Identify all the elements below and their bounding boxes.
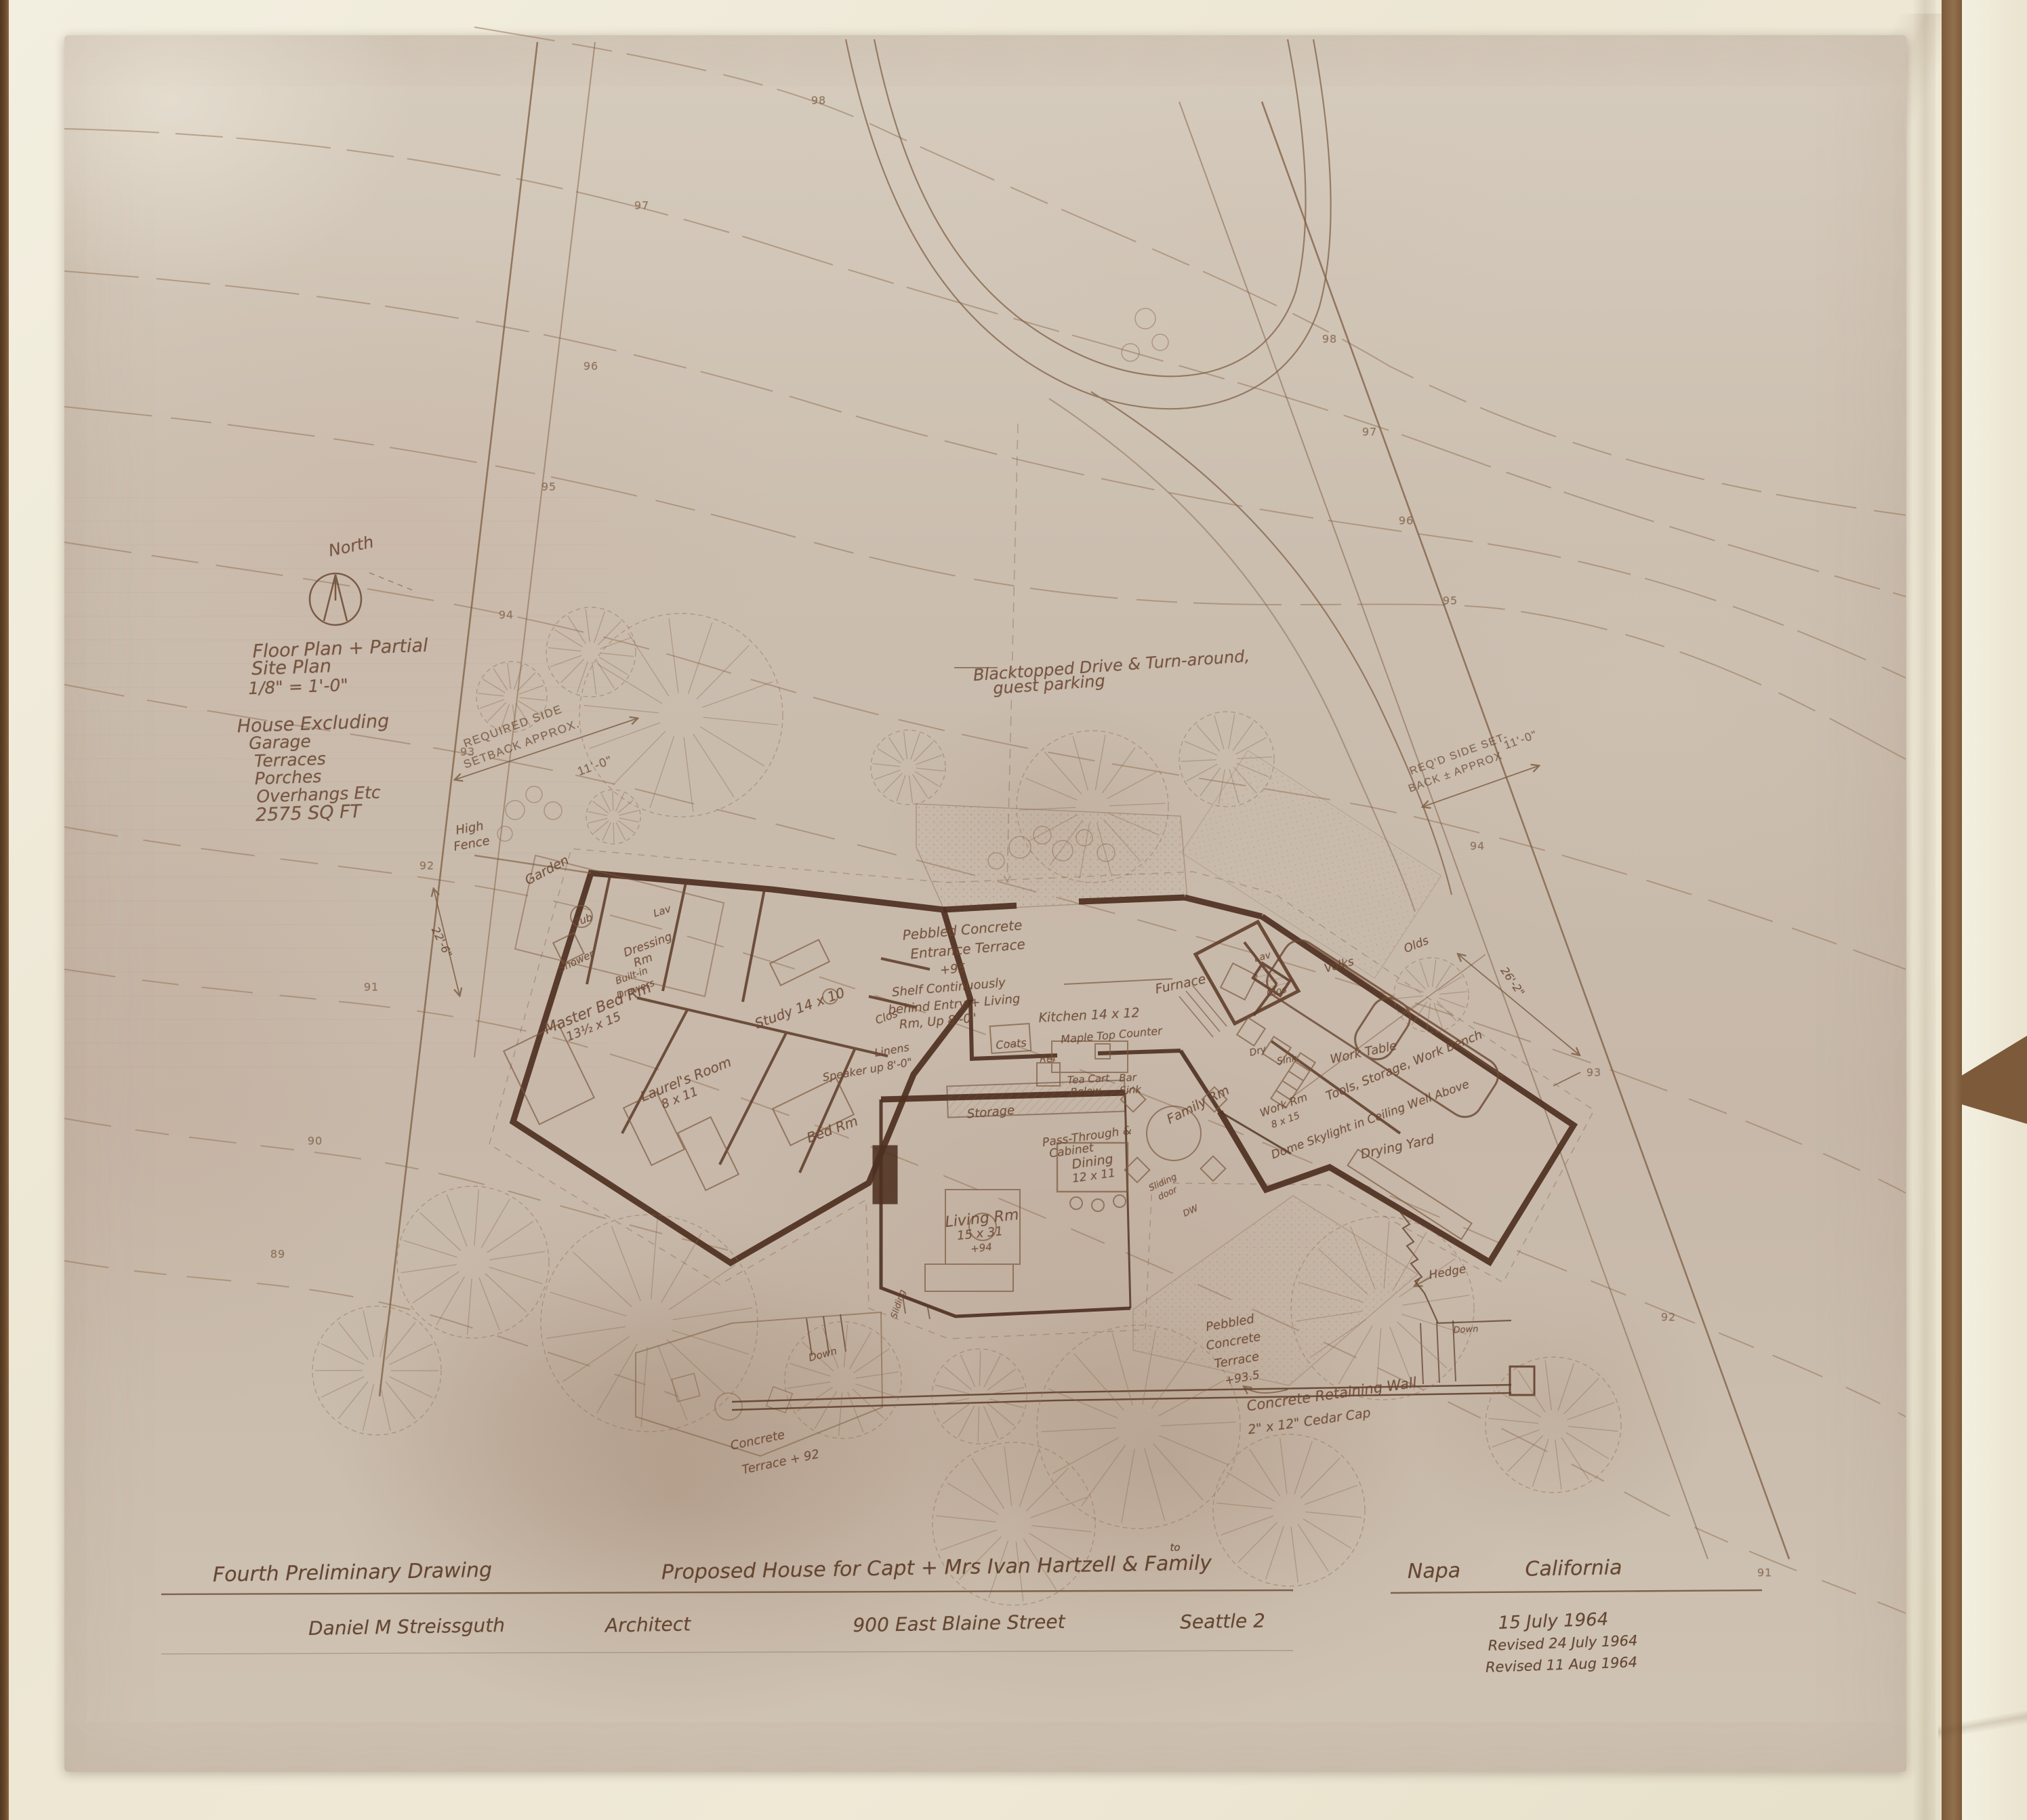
- shrubs: [497, 308, 1168, 869]
- driveway: [846, 39, 1452, 912]
- title-block-rules: [161, 1590, 1762, 1654]
- site-plan-drawing: [0, 0, 2027, 1820]
- north-arrow-icon: [310, 573, 415, 625]
- dimension-lines: [434, 668, 1580, 1393]
- hedge-line: [1400, 1212, 1511, 1323]
- photographed-floor-plan: NorthFloor Plan + PartialSite Plan1/8" =…: [0, 0, 2027, 1820]
